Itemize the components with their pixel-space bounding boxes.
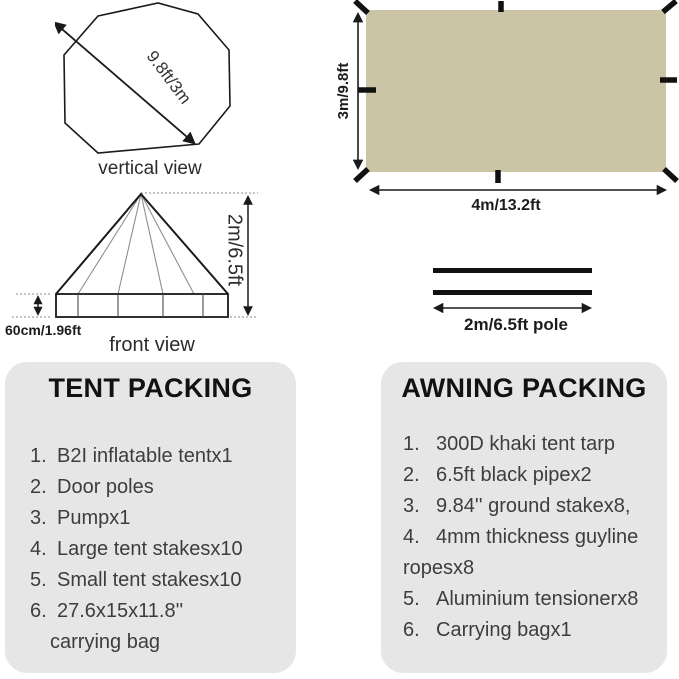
tent-seam-lines (78, 194, 194, 294)
pole-length-label: 2m/6.5ft pole (464, 315, 568, 334)
list-item: ropesx8 (403, 553, 667, 584)
list-item-text: 27.6x15x11.8'' (57, 600, 183, 622)
list-item: 4.4mm thickness guyline (403, 522, 667, 553)
tarp-width-label: 4m/13.2ft (471, 197, 541, 214)
list-item: 5.Aluminium tensionerx8 (403, 584, 667, 615)
list-item: 2.Door poles (30, 472, 296, 503)
pole-bar-1 (433, 268, 592, 273)
awning-packing-list: 1.300D khaki tent tarp2.6.5ft black pipe… (381, 429, 667, 646)
tent-roof-outline (56, 194, 228, 294)
list-item-number: 6. (30, 596, 57, 627)
tent-height-label: 2m/6.5ft (224, 214, 246, 287)
list-item: 5.Small tent stakesx10 (30, 565, 296, 596)
list-item-number: 2. (30, 472, 57, 503)
tent-packing-panel: TENT PACKING 1.B2I inflatable tentx12.Do… (5, 362, 296, 673)
list-item-number: 1. (403, 429, 436, 460)
list-item-number: 3. (403, 491, 436, 522)
list-item-number: 2. (403, 460, 436, 491)
list-item-number: 4. (30, 534, 57, 565)
list-item-text: 9.84'' ground stakex8, (436, 495, 630, 517)
vertical-view-caption: vertical view (55, 158, 245, 180)
list-item-text: ropesx8 (403, 557, 474, 579)
infographic-canvas: 9.8ft/3m vertical view (0, 0, 679, 679)
front-view-diagram: 2m/6.5ft 60cm/1.96ft (0, 185, 280, 340)
list-item-text: 6.5ft black pipex2 (436, 464, 592, 486)
tarp-fabric (366, 10, 666, 172)
list-item-text: B2I inflatable tentx1 (57, 445, 233, 467)
list-item-text: Aluminium tensionerx8 (436, 588, 638, 610)
list-item-number: 5. (30, 565, 57, 596)
list-item-text: Pumpx1 (57, 507, 130, 529)
vertical-view-diagram: 9.8ft/3m (55, 0, 245, 180)
pole-bar-2 (433, 290, 592, 295)
list-item: 2.6.5ft black pipex2 (403, 460, 667, 491)
front-view-caption: front view (52, 334, 252, 357)
list-item: 3.9.84'' ground stakex8, (403, 491, 667, 522)
list-item-text: Door poles (57, 476, 154, 498)
list-item-number: 6. (403, 615, 436, 646)
list-item: 6.Carrying bagx1 (403, 615, 667, 646)
list-item-text: 4mm thickness guyline (436, 526, 638, 548)
tarp-height-label: 3m/9.8ft (335, 63, 352, 120)
awning-packing-title: AWNING PACKING (389, 372, 659, 405)
list-item: 1.300D khaki tent tarp (403, 429, 667, 460)
tent-packing-title: TENT PACKING (13, 372, 288, 405)
list-item: carrying bag (30, 627, 296, 658)
list-item: 3.Pumpx1 (30, 503, 296, 534)
list-item-number: 5. (403, 584, 436, 615)
list-item-text: carrying bag (50, 631, 160, 653)
list-item: 6.27.6x15x11.8'' (30, 596, 296, 627)
list-item-number: 1. (30, 441, 57, 472)
list-item-text: Carrying bagx1 (436, 619, 572, 641)
poles-diagram: 2m/6.5ft pole (420, 255, 620, 345)
list-item: 1.B2I inflatable tentx1 (30, 441, 296, 472)
tent-packing-list: 1.B2I inflatable tentx12.Door poles3.Pum… (5, 441, 296, 658)
awning-packing-panel: AWNING PACKING 1.300D khaki tent tarp2.6… (381, 362, 667, 673)
list-item-number: 3. (30, 503, 57, 534)
list-item-text: 300D khaki tent tarp (436, 433, 615, 455)
list-item: 4.Large tent stakesx10 (30, 534, 296, 565)
tent-wall-outline (56, 294, 228, 317)
tarp-diagram: 3m/9.8ft 4m/13.2ft (330, 0, 679, 215)
octagon-outline (64, 3, 230, 153)
list-item-number: 4. (403, 522, 436, 553)
list-item-text: Small tent stakesx10 (57, 569, 242, 591)
list-item-text: Large tent stakesx10 (57, 538, 243, 560)
